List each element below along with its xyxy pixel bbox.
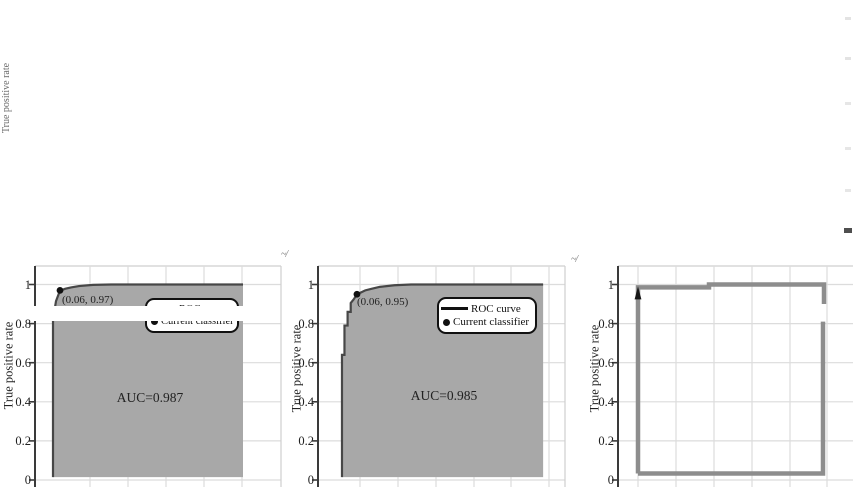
auc-value-panel-1: AUC=0.987 [95, 390, 205, 406]
y-tick-label: 1 [284, 277, 314, 293]
y-tick-label: 0 [1, 472, 31, 487]
stray-mark: ~/ [281, 249, 287, 260]
roc-charts-svg [0, 0, 853, 487]
y-tick-label: 0.6 [284, 355, 314, 371]
edge-tick-artifact [845, 147, 851, 150]
auc-value-panel-2: AUC=0.985 [389, 388, 499, 404]
y-tick-label: 0 [284, 472, 314, 487]
y-tick-label: 0.8 [1, 316, 31, 332]
legend-item-current-classifier: Current classifier [443, 316, 531, 328]
legend-item-roc-curve: ROC curve [443, 303, 531, 315]
y-tick-label: 0.4 [584, 394, 614, 410]
edge-dark-artifact [844, 228, 852, 233]
edge-tick-artifact [845, 17, 851, 20]
legend-panel-2: ROC curve Current classifier [437, 297, 537, 334]
y-tick-label: 0.2 [584, 433, 614, 449]
operating-point-annotation-panel-2: (0.06, 0.95) [357, 296, 408, 308]
roc-curve-line-swatch [441, 307, 468, 310]
edge-tick-artifact [845, 57, 851, 60]
edge-tick-artifact [845, 189, 851, 192]
y-tick-label: 0.2 [1, 433, 31, 449]
y-tick-label: 0.4 [1, 394, 31, 410]
edge-tick-artifact [845, 102, 851, 105]
current-classifier-dot-swatch [443, 319, 450, 326]
y-tick-label: 0.6 [1, 355, 31, 371]
y-tick-label: 0.6 [584, 355, 614, 371]
roc-figure: True positive rate ~/ ~/ True positive r… [0, 0, 853, 487]
y-tick-label: 0.4 [284, 394, 314, 410]
y-tick-label: 1 [1, 277, 31, 293]
y-tick-label: 0 [584, 472, 614, 487]
legend-label-current-classifier: Current classifier [453, 316, 529, 328]
legend-label-roc-curve: ROC curve [471, 303, 521, 315]
white-band-artifact [34, 306, 243, 321]
y-tick-label: 0.8 [584, 316, 614, 332]
y-tick-label: 0.8 [284, 316, 314, 332]
y-tick-label: 0.2 [284, 433, 314, 449]
operating-point-annotation-panel-1: (0.06, 0.97) [62, 294, 113, 306]
y-tick-label: 1 [584, 277, 614, 293]
stray-mark: ~/ [571, 254, 577, 265]
ghost-y-axis-label: True positive rate [1, 50, 13, 146]
